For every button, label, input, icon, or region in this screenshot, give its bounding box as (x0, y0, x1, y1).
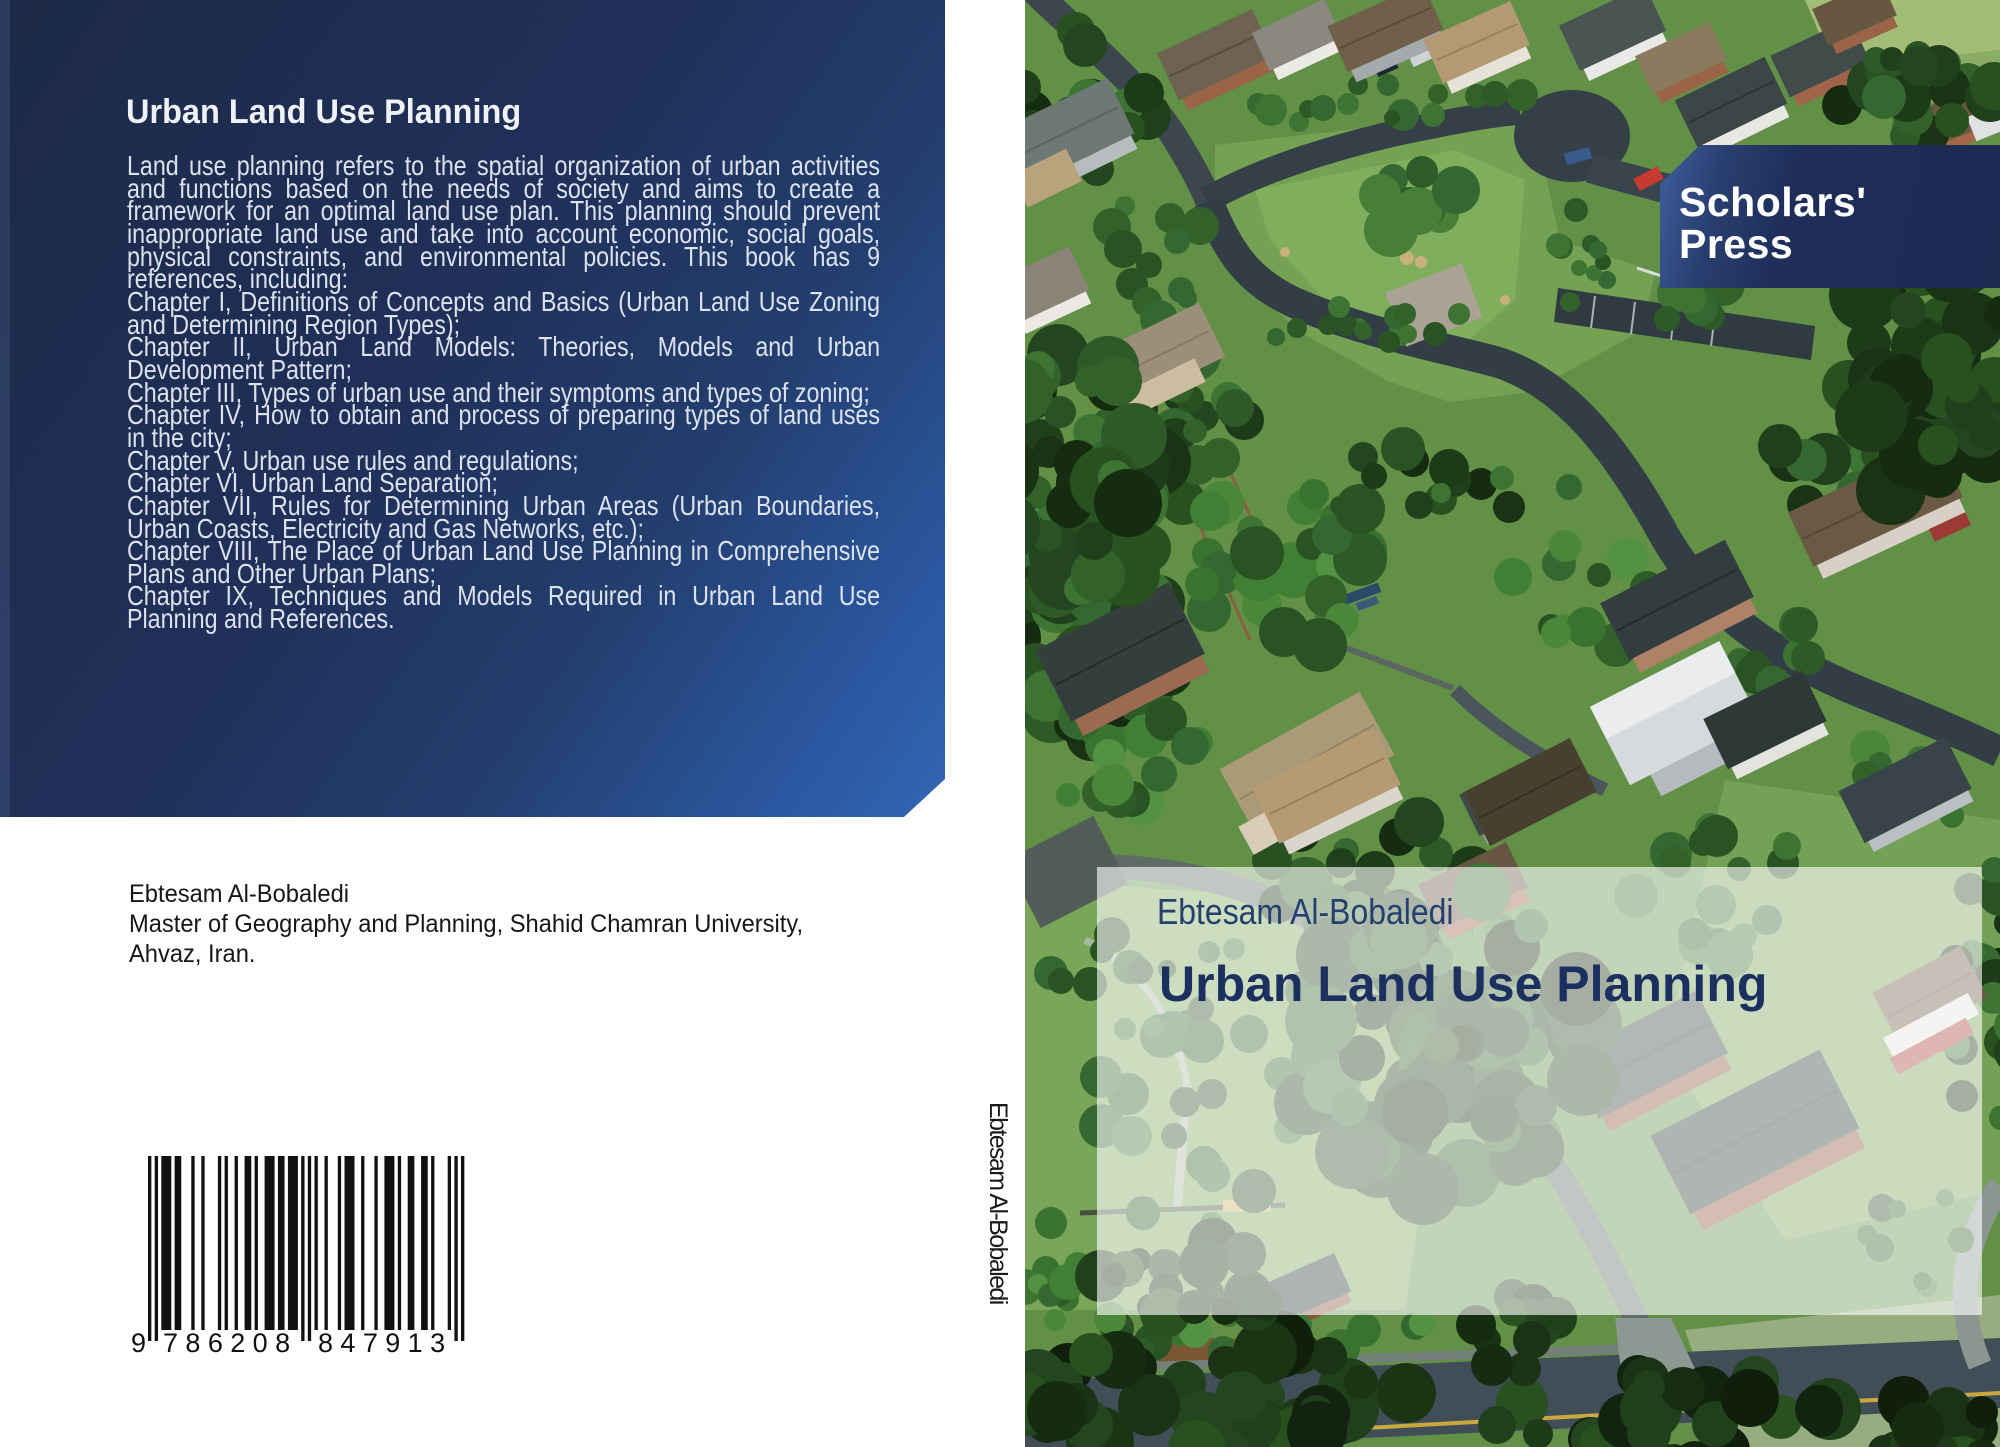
svg-text:9: 9 (131, 1328, 146, 1358)
svg-text:847913: 847913 (318, 1328, 453, 1358)
svg-text:786208: 786208 (163, 1328, 298, 1358)
